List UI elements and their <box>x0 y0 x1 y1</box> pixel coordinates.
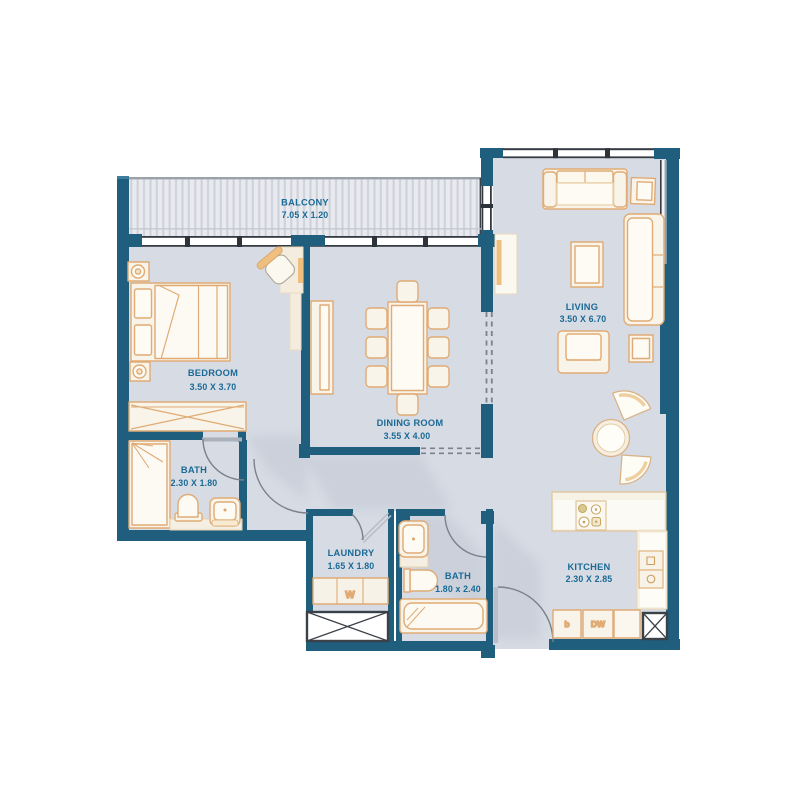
svg-text:KITCHEN: KITCHEN <box>567 562 610 572</box>
svg-text:3.50 X 6.70: 3.50 X 6.70 <box>560 314 607 324</box>
svg-text:BALCONY: BALCONY <box>281 198 329 208</box>
svg-text:2.30 X 1.80: 2.30 X 1.80 <box>171 478 218 488</box>
svg-text:7.05 X 1.20: 7.05 X 1.20 <box>282 210 329 220</box>
svg-text:LIVING: LIVING <box>566 302 599 312</box>
svg-text:BATH: BATH <box>445 571 471 581</box>
svg-text:3.50 X 3.70: 3.50 X 3.70 <box>190 382 237 392</box>
svg-text:b: b <box>564 619 569 629</box>
svg-text:DW: DW <box>591 619 606 629</box>
svg-text:BEDROOM: BEDROOM <box>188 368 238 378</box>
svg-text:BATH: BATH <box>181 465 207 475</box>
svg-text:3.55 X 4.00: 3.55 X 4.00 <box>384 431 431 441</box>
svg-text:1.80 x 2.40: 1.80 x 2.40 <box>435 584 481 594</box>
svg-text:W: W <box>345 590 355 601</box>
svg-text:2.30 X 2.85: 2.30 X 2.85 <box>566 574 613 584</box>
svg-text:1.65 X 1.80: 1.65 X 1.80 <box>328 561 375 571</box>
svg-text:LAUNDRY: LAUNDRY <box>328 548 375 558</box>
svg-text:DINING ROOM: DINING ROOM <box>377 418 444 428</box>
